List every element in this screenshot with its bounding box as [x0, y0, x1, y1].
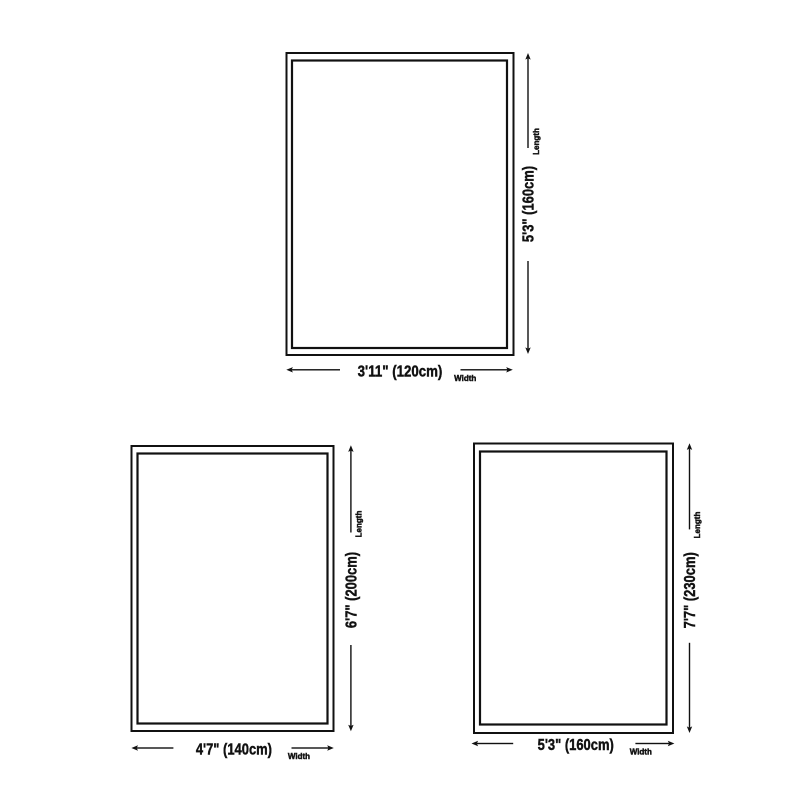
svg-text:Width: Width [288, 752, 310, 761]
svg-text:5'3" (160cm): 5'3" (160cm) [520, 166, 538, 242]
svg-text:Width: Width [630, 747, 652, 756]
svg-text:3'11" (120cm): 3'11" (120cm) [358, 363, 443, 380]
svg-text:Length: Length [693, 512, 702, 539]
svg-text:6'7" (200cm): 6'7" (200cm) [343, 552, 361, 628]
svg-text:Length: Length [532, 128, 541, 155]
svg-text:4'7" (140cm): 4'7" (140cm) [196, 741, 272, 759]
svg-text:Width: Width [454, 374, 476, 383]
svg-text:5'3" (160cm): 5'3" (160cm) [538, 737, 614, 755]
svg-text:Length: Length [355, 511, 364, 538]
svg-text:7'7" (230cm): 7'7" (230cm) [682, 552, 700, 628]
